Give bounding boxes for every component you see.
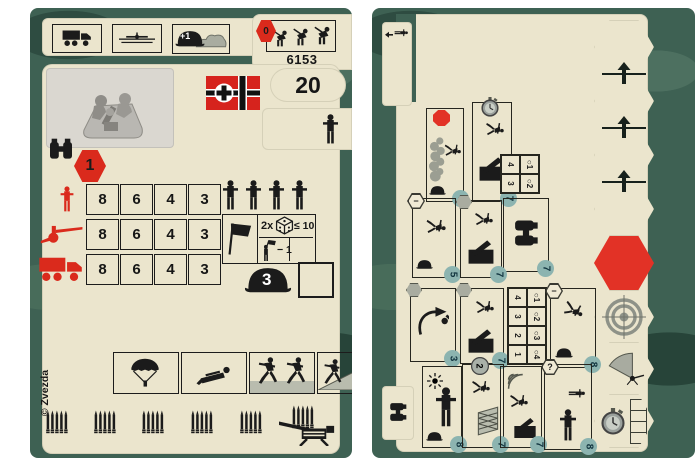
helmet-icon: [426, 431, 443, 441]
range-table-headers: ○1○2○3○4: [527, 288, 546, 364]
divider: [257, 215, 258, 263]
divider: [259, 237, 313, 238]
lattice-fence-icon: [477, 401, 499, 441]
flag-icon: [227, 220, 255, 258]
table-header: ○3: [527, 326, 546, 345]
digger-icon: [291, 27, 310, 46]
order-reference-card: 3 7 ○1○2 43 7 − 5 7: [372, 8, 695, 458]
running-soldier-icon: [284, 357, 306, 384]
table-value: 3: [508, 307, 527, 326]
morale-penalty: − 1: [277, 244, 292, 256]
table-value: 4: [501, 155, 520, 174]
top-left-tab: [382, 22, 412, 106]
table-header: ○4: [527, 345, 546, 364]
digger-icon: [312, 25, 332, 45]
stat-cell: 8: [86, 184, 119, 215]
stopwatch-badge-value: 2: [475, 363, 485, 368]
ammo-clip-icon: [240, 404, 262, 440]
turn-squares: [630, 400, 647, 444]
mortar-crate-icon: [467, 235, 495, 269]
move-arrow-icon: [617, 62, 631, 84]
product-code: 6153: [270, 52, 334, 67]
helmet-icon: [555, 347, 573, 358]
cost-value: 7: [533, 442, 544, 448]
cost-value: 5: [447, 272, 458, 278]
spot-table-values: 43: [501, 155, 520, 193]
minus-badge-value: −: [409, 195, 424, 208]
table-header: ○1: [527, 288, 546, 307]
soldier-icon: [440, 143, 462, 160]
soldier-icon: [470, 211, 494, 230]
order-cost: 8: [580, 438, 597, 455]
prone-soldier-icon: [385, 27, 409, 43]
panel-smoke-screen: 3: [426, 108, 464, 202]
running-soldier-icon: [421, 217, 447, 239]
panel-bail-out: − 8: [550, 288, 596, 368]
squad-figure-icon: [245, 180, 262, 210]
walking-soldier-icon: [559, 409, 577, 441]
panel-run: − 5: [412, 198, 456, 278]
crawl-ability-box: [181, 352, 247, 394]
panel-signal-flare: 8: [422, 366, 462, 448]
radio-waves-icon: [506, 372, 524, 390]
squad-figure-icon: [222, 180, 239, 210]
panel-spotting: 7: [503, 198, 549, 272]
stat-cell: 3: [188, 254, 221, 285]
walking-soldier-icon: [555, 387, 585, 407]
recon-badge-value: 1: [86, 157, 95, 175]
running-soldier-icon: [256, 357, 278, 384]
helmet-value: 3: [262, 270, 271, 290]
range-table-values: 4321: [508, 288, 527, 364]
range-table: ○1○2○3○4 4321: [507, 287, 547, 365]
glider-icon: [119, 32, 155, 44]
german-war-flag: [206, 76, 260, 110]
cost-value: 8: [583, 444, 594, 450]
stat-cell: 4: [154, 254, 187, 285]
stat-cell: 6: [120, 184, 153, 215]
panel-climb-obstacle: 2 7: [462, 364, 504, 448]
unit-stat-card: +1 0 6153: [30, 8, 352, 458]
table-value: 3: [501, 174, 520, 193]
dice-icon: [275, 216, 294, 235]
spot-table-headers: ○1○2: [520, 155, 539, 193]
entrench-badge-value: 0: [263, 26, 269, 37]
flag-art: [206, 76, 260, 110]
machine-gun-icon: [276, 418, 338, 446]
minus-badge-value: −: [547, 285, 562, 298]
ammo-clip-icon: [191, 404, 213, 440]
question-badge-value: ?: [543, 361, 558, 374]
spot-table: ○1○2 43: [500, 154, 540, 194]
binoculars-icon: [46, 138, 76, 160]
mortar-crew-photo-art: [46, 68, 174, 148]
stopwatch-icon: [601, 408, 625, 435]
stat-cell: 8: [86, 219, 119, 250]
cost-value: 7: [493, 272, 504, 278]
points-value: 20: [295, 72, 321, 99]
vehicle-target-icon: [38, 256, 84, 282]
table-value: 4: [508, 288, 527, 307]
panel-take-cover: 7: [460, 288, 504, 364]
vault-ability-box: [317, 352, 352, 394]
order-cost: 7: [490, 266, 507, 283]
table-value: 2: [508, 326, 527, 345]
target-icon: [602, 295, 646, 339]
climbing-soldier-icon: [481, 121, 505, 140]
crawling-soldier-icon: [195, 365, 233, 385]
binoculars-icon: [388, 400, 408, 424]
truck-icon: [62, 29, 92, 47]
table-value: 1: [508, 345, 527, 364]
order-cost: 7: [537, 260, 554, 277]
helmet-save-badge: 3: [244, 264, 292, 300]
move-arrow-icon: [617, 170, 631, 192]
squad-figure-icon: [291, 180, 308, 210]
morale-multiplier: 2x: [261, 220, 273, 232]
cost-value: 7: [495, 358, 506, 364]
move-arrow-icon: [617, 116, 631, 138]
ammo-clip-icon: [142, 404, 164, 440]
soldier-icon: [322, 114, 339, 144]
binoculars-icon: [512, 217, 540, 249]
panel-set-up-mortar: 7: [460, 200, 502, 278]
falling-soldier-icon: [561, 301, 587, 325]
ammo-clip-icon: [94, 404, 116, 440]
jumping-soldier-icon: [471, 299, 495, 318]
charge-ability-box: [249, 352, 315, 394]
panel-grenade-throw: 3: [410, 288, 456, 362]
stopwatch-2-badge: 2: [471, 357, 489, 375]
stop-octagon-badge: [433, 110, 450, 126]
cover-bonus-label: +1: [180, 31, 190, 41]
air-transport-box: [112, 24, 162, 53]
stat-cell: 4: [154, 219, 187, 250]
helmet-icon: [429, 185, 446, 195]
order-cost: 5: [444, 266, 461, 283]
order-cost: 3: [444, 350, 461, 367]
truck-transport-box: [52, 24, 102, 53]
helmet-icon: [416, 259, 433, 269]
table-header: ○2: [527, 307, 546, 326]
morale-box: 2x ≤ 10 − 1: [222, 214, 316, 264]
empty-marker-square: [298, 262, 334, 298]
panel-radio-contact: 7: [500, 366, 542, 448]
scan-of-two-game-cards: +1 0 6153: [0, 0, 700, 466]
panel-march: ? 8: [544, 364, 592, 450]
flag-bearer-icon: [260, 240, 277, 261]
vaulting-soldier-icon: [322, 359, 342, 384]
cover-crate-icon: [467, 325, 495, 357]
stat-cell: 6: [120, 254, 153, 285]
points-pill: 20: [270, 68, 346, 102]
cost-value: 3: [447, 356, 458, 362]
table-header: ○2: [520, 174, 539, 193]
parachute-icon: [129, 358, 161, 387]
kneeling-operator-icon: [505, 393, 529, 412]
stat-cell: 8: [86, 254, 119, 285]
cost-value: 7: [540, 266, 551, 272]
stat-cell: 4: [154, 184, 187, 215]
grenade-arc-icon: [417, 303, 449, 339]
signaling-soldier-icon: [435, 387, 457, 427]
fire-arc-icon: [603, 351, 645, 387]
parachute-ability-box: [113, 352, 179, 394]
entrench-order-box: [266, 20, 336, 52]
infantry-target-icon: [60, 184, 74, 214]
climbing-soldier-icon: [467, 379, 491, 398]
stat-cell: 6: [120, 219, 153, 250]
ammo-clip-icon: [46, 404, 68, 440]
stopwatch-badge: [481, 97, 499, 117]
miniature-photo: [46, 68, 174, 148]
stat-cell: 3: [188, 219, 221, 250]
table-header: ○1: [520, 155, 539, 174]
bottom-left-tab: [382, 386, 414, 440]
squad-figure-icon: [268, 180, 285, 210]
stat-cell: 3: [188, 184, 221, 215]
cover-bonus-box: +1: [172, 24, 230, 54]
artillery-target-icon: [40, 222, 84, 244]
morale-threshold: ≤ 10: [294, 220, 314, 232]
